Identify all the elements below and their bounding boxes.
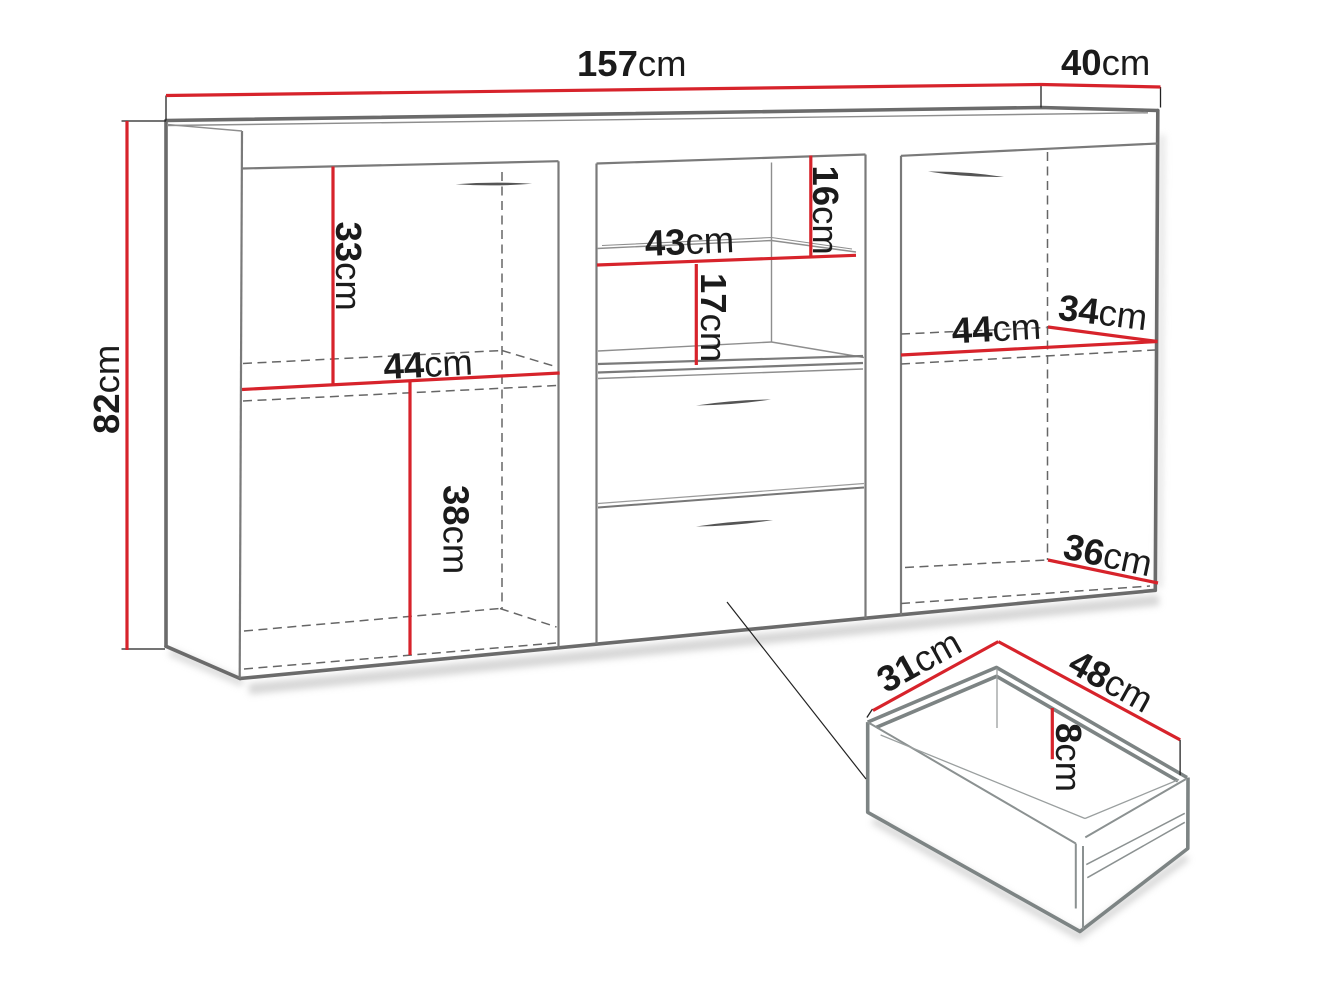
svg-text:8cm: 8cm	[1048, 723, 1089, 792]
svg-text:157cm: 157cm	[577, 43, 687, 84]
svg-text:82cm: 82cm	[86, 345, 127, 434]
svg-text:16cm: 16cm	[805, 166, 846, 255]
svg-text:33cm: 33cm	[328, 222, 369, 311]
svg-text:38cm: 38cm	[436, 485, 477, 574]
svg-text:17cm: 17cm	[693, 273, 734, 362]
svg-text:43cm: 43cm	[644, 219, 735, 264]
svg-text:44cm: 44cm	[951, 306, 1042, 352]
svg-text:44cm: 44cm	[382, 342, 473, 388]
svg-text:40cm: 40cm	[1061, 42, 1150, 83]
